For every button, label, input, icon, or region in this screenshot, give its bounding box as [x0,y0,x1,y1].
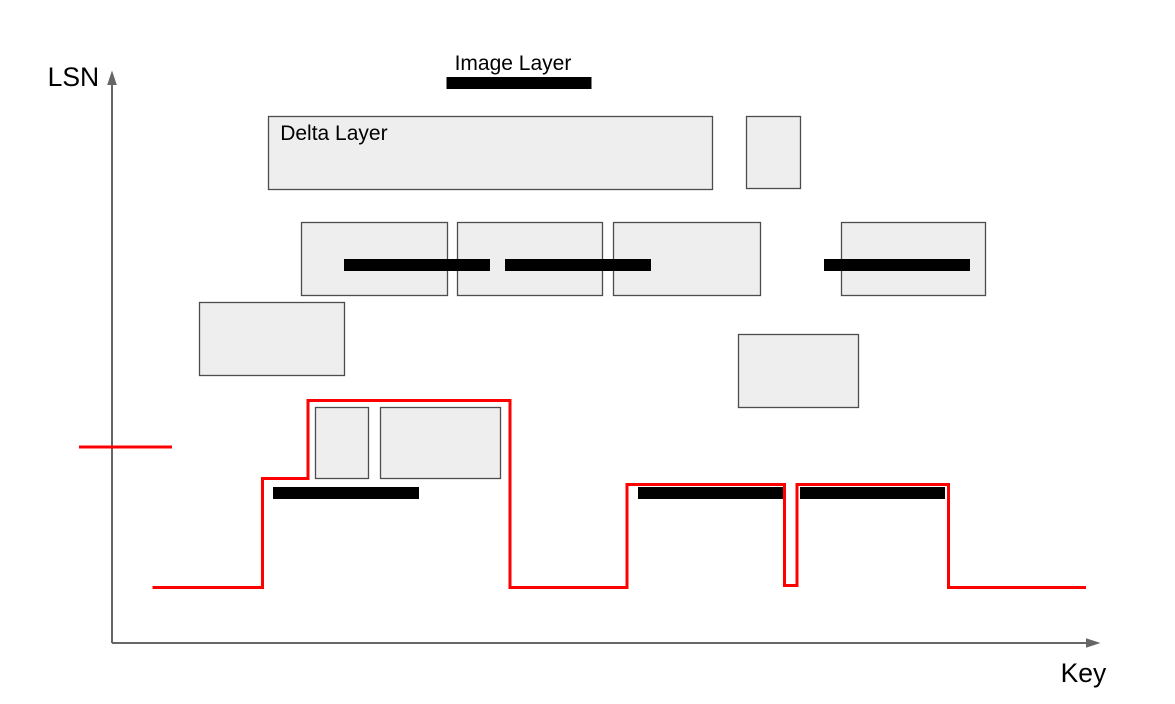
svg-text:Image Layer: Image Layer [455,52,572,75]
svg-text:LSN: LSN [48,62,100,92]
svg-text:Key: Key [1061,658,1107,688]
svg-text:Delta Layer: Delta Layer [280,122,387,145]
